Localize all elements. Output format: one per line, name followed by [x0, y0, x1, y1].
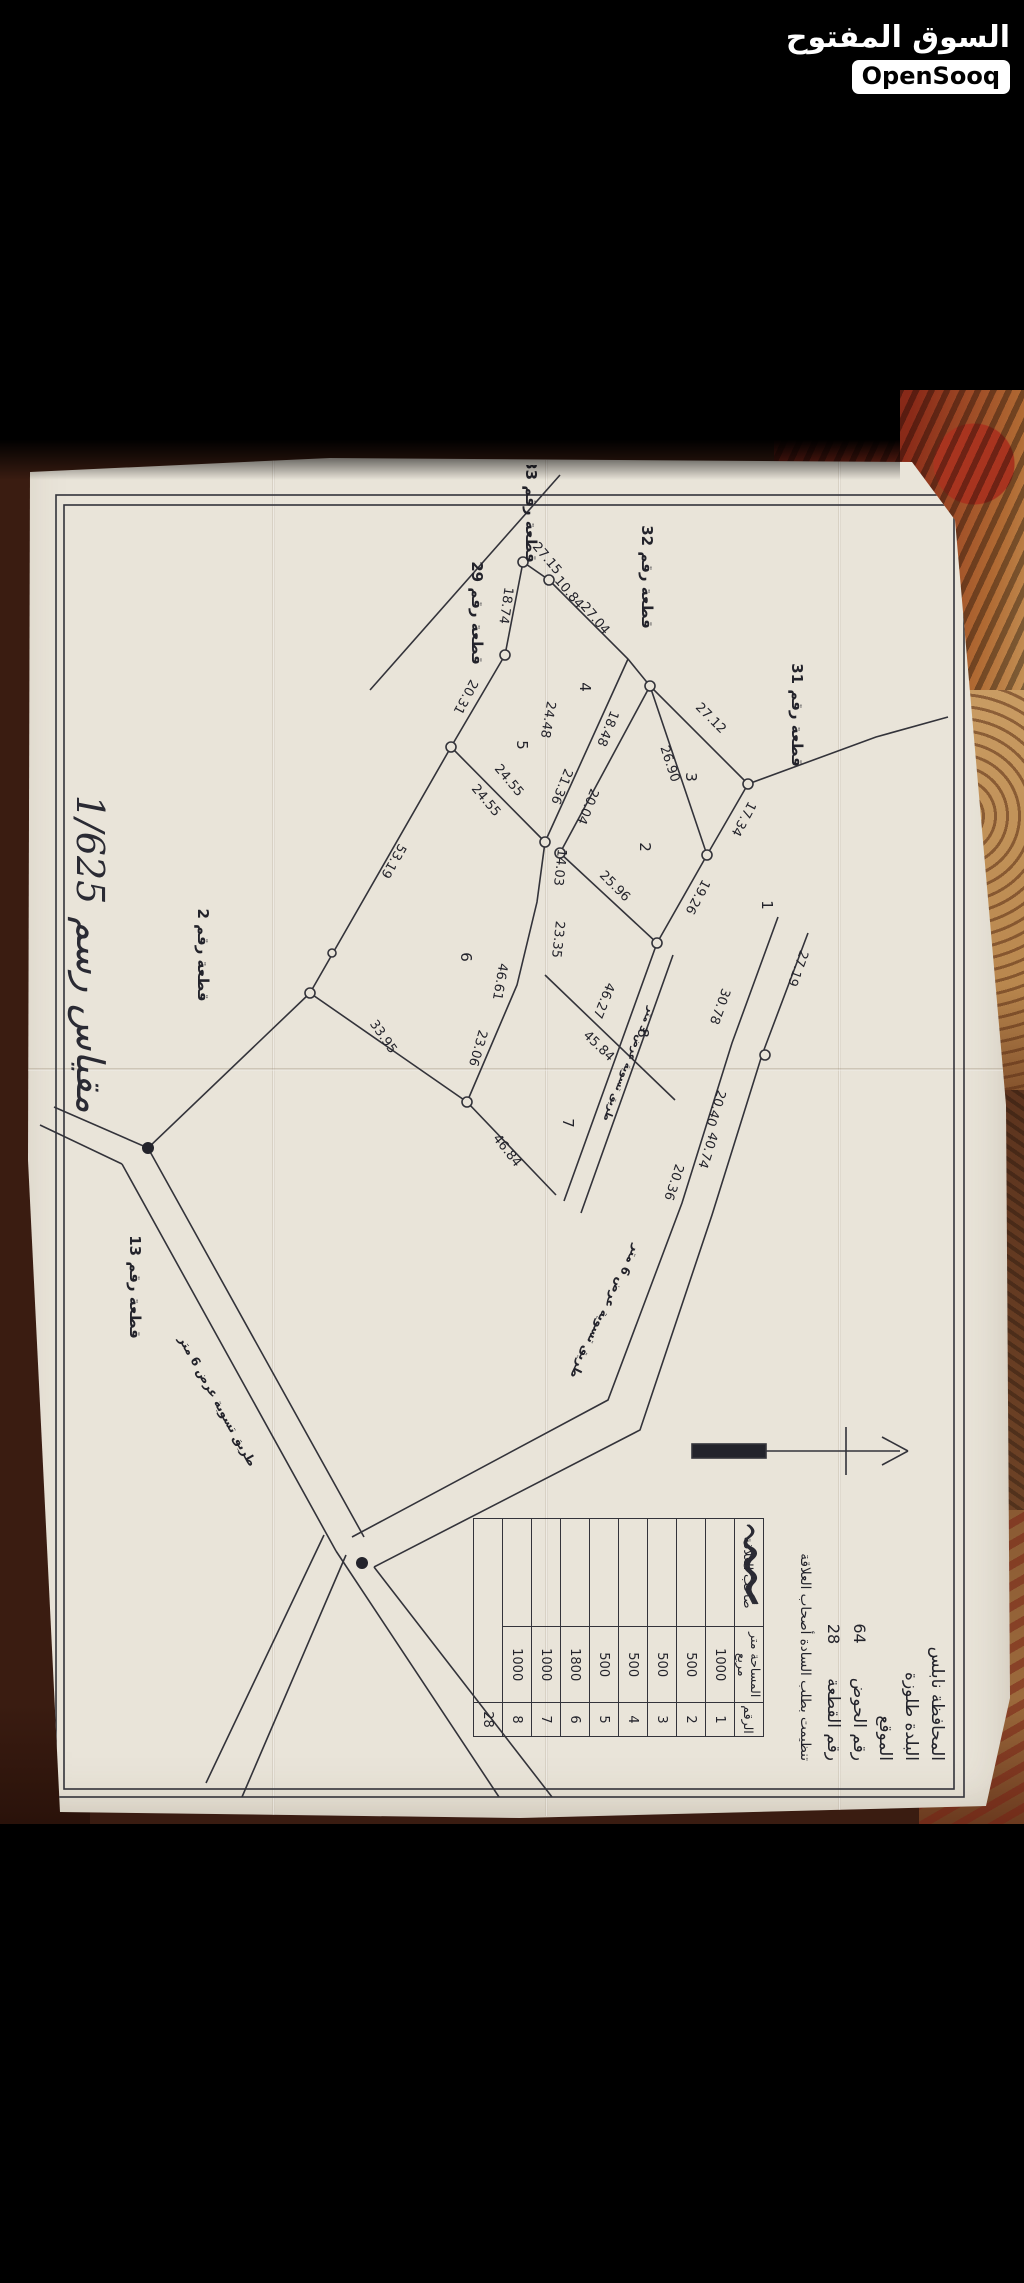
parcel-number: 2 [636, 842, 654, 852]
adjacent-plot-label: قطعة رقم 2 [194, 908, 212, 1001]
screenshot-stage: السوق المفتوح OpenSooq [0, 0, 1024, 2283]
plan-note: تنظيمت بطلب السادة أصحاب العلاقة [792, 1553, 818, 1761]
table-row: 11000 [706, 1519, 735, 1737]
measurement-label: 45.84 [580, 1028, 617, 1065]
survey-plan-paper: 27.1510.8427.0418.7420.3124.5524.5524.48… [0, 390, 1024, 1824]
table-row: 61800 [561, 1519, 590, 1737]
row-area: 500 [590, 1627, 619, 1703]
footer-empty-cell [474, 1519, 503, 1703]
measurement-label: 20.31 [450, 677, 481, 717]
measurement-label: 24.55 [491, 762, 526, 800]
measurement-label: 46.84 [489, 1132, 524, 1171]
handwriting-squiggle [742, 1519, 762, 1615]
row-owner-signature [590, 1519, 619, 1627]
row-owner-signature [561, 1519, 590, 1627]
row-owner-signature [503, 1519, 532, 1627]
measurement-label: 27.04 [577, 600, 612, 638]
measurement-label: 27.19 [784, 948, 811, 988]
row-owner-signature [619, 1519, 648, 1627]
junction-points [142, 1142, 368, 1569]
row-number: 7 [532, 1703, 561, 1737]
table-row: 2500 [677, 1519, 706, 1737]
photo-shadow [0, 390, 900, 480]
measurement-label: 19.26 [682, 877, 713, 917]
parcel-number: 3 [682, 772, 700, 782]
row-owner-signature [677, 1519, 706, 1627]
measurement-label: 24.55 [468, 782, 503, 820]
parcel-line [310, 747, 556, 1195]
owners-table: الرقم المساحة متر مربع صاحب العلاقة 1100… [473, 1518, 764, 1737]
parcel-number: 1 [758, 900, 776, 910]
row-owner-signature [648, 1519, 677, 1627]
measurement-label: 23.35 [548, 920, 567, 959]
row-area: 500 [648, 1627, 677, 1703]
row-number: 2 [677, 1703, 706, 1737]
row-number: 5 [590, 1703, 619, 1737]
basin-line: رقم الحوض64 [846, 1553, 872, 1761]
adjacent-plot-label: قطعة رقم 32 [638, 525, 656, 629]
col-number: الرقم [735, 1703, 764, 1737]
row-area: 1000 [706, 1627, 735, 1703]
table-row: 4500 [619, 1519, 648, 1737]
basin-value: 64 [850, 1623, 869, 1643]
table-row: 3500 [648, 1519, 677, 1737]
parcel-number: 5 [513, 740, 531, 750]
governorate-line: المحافظة نابلس [924, 1553, 950, 1761]
adjacent-plot-label: قطعة رقم 29 [468, 561, 486, 665]
measurement-label: 30.78 [706, 986, 733, 1026]
row-area: 500 [619, 1627, 648, 1703]
road-branch [206, 1535, 346, 1797]
table-row: 5500 [590, 1519, 619, 1737]
footer-parcel-no: 28 [474, 1703, 503, 1737]
measurement-label: 24.48 [537, 700, 558, 739]
row-area: 1000 [532, 1627, 561, 1703]
road-label: طريق تسوية عرض 6 متر [566, 1241, 644, 1380]
table-footer-row: 28 [474, 1519, 503, 1737]
measurement-label: 53.19 [377, 841, 409, 881]
measurement-label: 23.06 [465, 1028, 490, 1068]
row-area: 500 [677, 1627, 706, 1703]
adjacent-plot-label: قطعة رقم 13 [126, 1235, 144, 1339]
parcel-number: 7 [559, 1118, 577, 1128]
measurement-label: 33.95 [366, 1017, 400, 1056]
col-area: المساحة متر مربع [735, 1627, 764, 1703]
row-owner-signature [532, 1519, 561, 1627]
measurement-label: 46.27 [589, 980, 617, 1020]
location-line: الموقع [872, 1553, 898, 1761]
table-row: 71000 [532, 1519, 561, 1737]
opensooq-logo-arabic: السوق المفتوح [786, 22, 1010, 54]
opensooq-logo: السوق المفتوح OpenSooq [786, 22, 1010, 94]
row-owner-signature [706, 1519, 735, 1627]
measurement-label: 26.90 [656, 744, 682, 784]
parcel-value: 28 [824, 1624, 843, 1644]
opensooq-logo-badge: OpenSooq [852, 60, 1010, 94]
cadastral-plan: 27.1510.8427.0418.7420.3124.5524.5524.48… [14, 465, 1004, 1805]
parcel-line: رقم القطعة28 [820, 1553, 846, 1761]
measurement-label: 27.12 [692, 700, 729, 737]
parcel-line [560, 853, 707, 943]
measurement-label: 17.34 [728, 799, 759, 839]
measurement-label: 20.04 [573, 786, 601, 826]
listing-photo[interactable]: 27.1510.8427.0418.7420.3124.5524.5524.48… [0, 390, 1024, 1824]
row-area: 1000 [503, 1627, 532, 1703]
plot-boundary [148, 993, 310, 1148]
plot-boundary [748, 717, 948, 784]
parcel-number: 4 [576, 682, 594, 692]
plan-title-block: المحافظة نابلس البلدة طلوزة الموقع رقم ا… [792, 1553, 950, 1761]
road-label: طريق تسوية عرض 6 متر [174, 1333, 259, 1470]
row-area: 1800 [561, 1627, 590, 1703]
measurement-label: 14.03 [550, 848, 569, 887]
measurement-label: 20.36 [660, 1162, 686, 1202]
adjacent-plot-label: قطعة رقم 31 [788, 663, 806, 767]
parcel-number: 6 [457, 952, 475, 962]
measurement-label: 20.40 [702, 1088, 728, 1128]
road-6m-lower [122, 1148, 364, 1551]
row-number: 1 [706, 1703, 735, 1737]
table-row: 81000 [503, 1519, 532, 1737]
north-arrow-icon [692, 1427, 908, 1475]
town-line: البلدة طلوزة [898, 1553, 924, 1761]
measurement-label: 18.48 [593, 708, 621, 748]
row-number: 3 [648, 1703, 677, 1737]
row-number: 8 [503, 1703, 532, 1737]
measurement-label: 25.96 [596, 868, 633, 905]
row-number: 4 [619, 1703, 648, 1737]
row-number: 6 [561, 1703, 590, 1737]
scale-note: مقياس رسم 1/625 [68, 783, 112, 1113]
measurement-label: 46.61 [489, 962, 510, 1001]
